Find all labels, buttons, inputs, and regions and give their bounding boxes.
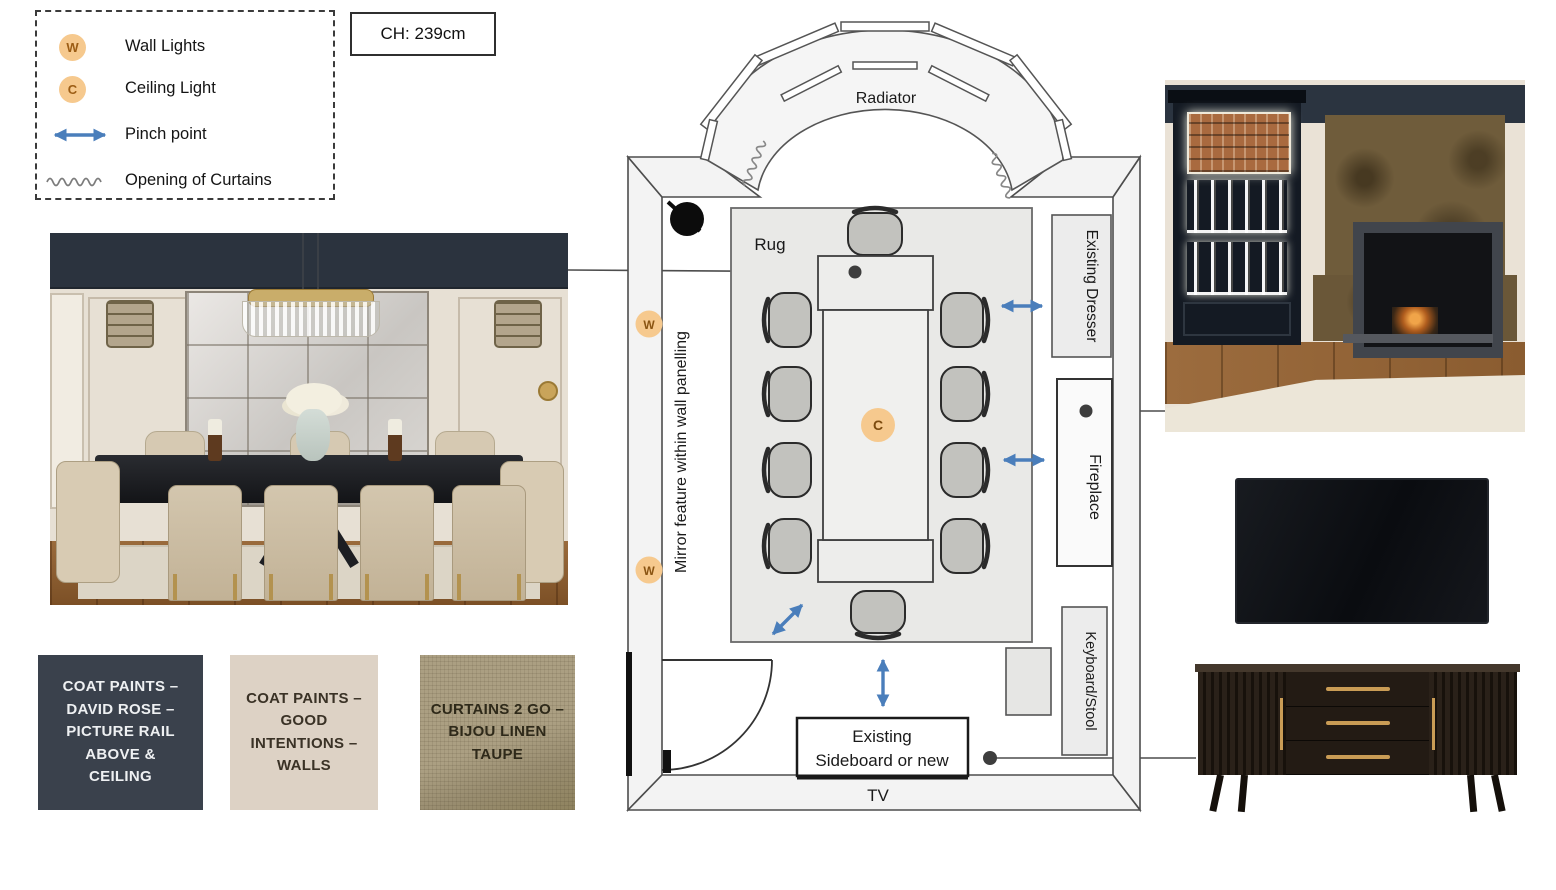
- window-frame: [841, 22, 929, 31]
- sideboard-label-line2: Sideboard or new: [815, 751, 949, 770]
- wall-top-left: [628, 157, 760, 197]
- dresser-fireplace-render: [1165, 80, 1525, 432]
- ceiling-height-box: CH: 239cm: [350, 12, 496, 56]
- legend-label: Ceiling Light: [125, 79, 216, 98]
- tv-render: [1235, 478, 1489, 624]
- legend-label: Pinch point: [125, 125, 207, 144]
- ceiling-light-icon: [861, 408, 895, 442]
- wall-top-right: [1011, 157, 1140, 197]
- window-frame: [853, 62, 917, 69]
- window-frame: [754, 23, 839, 66]
- connector-dining-to-table: [568, 270, 855, 272]
- pinch-point-arrow: [773, 605, 802, 634]
- ceiling-light-icon: C: [59, 76, 86, 103]
- dresser-cornice: [1168, 90, 1306, 103]
- fluted-door: [1429, 672, 1517, 775]
- fireplace-connector-dot: [1080, 405, 1093, 418]
- drawer-handle: [1326, 755, 1390, 759]
- legend-label: Wall Lights: [125, 37, 205, 56]
- door-pull: [1432, 698, 1435, 750]
- wall-light-symbol: W: [643, 318, 655, 332]
- chair-legs: [365, 574, 429, 600]
- wall-bottom: [628, 775, 1140, 810]
- window-frame: [781, 66, 841, 101]
- door-swing: [662, 660, 772, 770]
- bay-window: [707, 30, 1063, 190]
- table-foot: [818, 540, 933, 582]
- chair-legs: [173, 574, 237, 600]
- ceiling-light-symbol: C: [873, 417, 883, 433]
- chair-legs: [269, 574, 333, 600]
- paint-swatch-david-rose: COAT PAINTS – DAVID ROSE – PICTURE RAIL …: [38, 655, 203, 810]
- door-pull: [1280, 698, 1283, 750]
- chandelier-cord: [302, 233, 304, 293]
- paint-swatch-good-intentions: COAT PAINTS – GOOD INTENTIONS – WALLS: [230, 655, 378, 810]
- chandelier-crystals: [242, 301, 380, 337]
- door-frame-shadow: [626, 652, 632, 776]
- drawer: [1286, 672, 1429, 707]
- sideboard-body: [1198, 672, 1517, 775]
- sideboard-leg: [1467, 775, 1477, 812]
- chair: [764, 293, 811, 347]
- legend-row-pinch-point: Pinch point: [37, 122, 333, 156]
- chair: [941, 443, 988, 497]
- vase: [296, 409, 330, 461]
- radiator-label: Radiator: [856, 90, 917, 107]
- sideboard-label-line1: Existing: [852, 727, 912, 746]
- curtain-wave-icon: [43, 172, 119, 190]
- window-frame: [929, 66, 989, 101]
- design-board: W Wall Lights C Ceiling Light Pinch poin…: [0, 0, 1556, 890]
- keyboard-stool-box: [1062, 607, 1107, 755]
- wall-sconce-icon: [494, 300, 542, 348]
- wall-left: [628, 157, 662, 810]
- chair: [941, 367, 988, 421]
- table-head: [818, 256, 933, 310]
- hearth: [1343, 334, 1493, 343]
- wall-light-symbol: W: [643, 564, 655, 578]
- pinch-point-arrow-icon: [43, 126, 119, 144]
- chair: [764, 443, 811, 497]
- sideboard-leg: [1238, 775, 1248, 812]
- wine-rack: [1187, 112, 1291, 174]
- wall-light-icon: W: [59, 34, 86, 61]
- window-frame: [701, 120, 718, 161]
- rug-label: Rug: [754, 235, 785, 254]
- sideboard-connector-dot: [983, 751, 997, 765]
- dining-room-render: [50, 233, 568, 605]
- sideboard-leg: [1491, 774, 1506, 812]
- window-frame: [1010, 55, 1071, 130]
- sideboard-box: [797, 718, 968, 776]
- bay-window-frames: [701, 22, 1072, 160]
- dining-chair: [168, 485, 242, 601]
- drawer-handle: [1326, 687, 1390, 691]
- legend-row-wall-lights: W Wall Lights: [37, 34, 333, 68]
- table-body: [823, 310, 928, 540]
- door-stop: [663, 750, 671, 773]
- wall-light-icon: [636, 311, 663, 338]
- wall-lamp-icon: [538, 381, 558, 401]
- glassware-shelf: [1187, 242, 1287, 295]
- curtain-opening-icon: [989, 152, 1013, 199]
- fireplace-label: Fireplace: [1086, 454, 1103, 520]
- chair: [941, 519, 988, 573]
- dining-chair: [360, 485, 434, 601]
- dining-chair: [264, 485, 338, 601]
- sideboard-top: [1195, 664, 1520, 672]
- legend-row-curtain-opening: Opening of Curtains: [37, 168, 333, 202]
- legend-box: W Wall Lights C Ceiling Light Pinch poin…: [35, 10, 335, 200]
- wall-light-icon: [636, 557, 663, 584]
- dresser-label: Existing Dresser: [1083, 230, 1100, 343]
- drawer: [1286, 740, 1429, 775]
- legend-label: Opening of Curtains: [125, 171, 272, 190]
- chair: [764, 367, 811, 421]
- glassware-shelf: [1187, 180, 1287, 233]
- chair: [764, 519, 811, 573]
- drawer-handle: [1326, 721, 1390, 725]
- dining-chair: [452, 485, 526, 601]
- fireplace-box: [1057, 379, 1112, 566]
- rug: [731, 208, 1032, 642]
- fabric-swatch-bijou-linen: CURTAINS 2 GO – BIJOU LINEN TAUPE: [420, 655, 575, 810]
- dresser-cabinet: [1183, 302, 1291, 336]
- mirror-note: Mirror feature within wall panelling: [673, 331, 690, 573]
- wall-right: [1113, 157, 1140, 810]
- legend-row-ceiling-light: C Ceiling Light: [37, 76, 333, 110]
- window-frame: [932, 23, 1017, 66]
- fluted-door: [1198, 672, 1286, 775]
- ceiling-band: [50, 233, 568, 289]
- chair-legs: [457, 574, 521, 600]
- sideboard-render: [1195, 650, 1520, 815]
- tv-label: TV: [867, 786, 889, 805]
- corner-lamp-arm: [668, 202, 700, 231]
- window-frame: [1055, 120, 1072, 161]
- curtain-opening-icon: [742, 140, 766, 187]
- candle-holder: [388, 419, 402, 461]
- chair: [848, 208, 902, 255]
- corner-lamp-icon: [670, 202, 704, 236]
- table-connector-dot: [849, 266, 862, 279]
- candle-holder: [208, 419, 222, 461]
- end-chair: [56, 461, 120, 583]
- chair: [941, 293, 988, 347]
- sideboard-leg: [1209, 774, 1224, 812]
- stool: [1006, 648, 1051, 715]
- chandelier-cord: [317, 233, 319, 293]
- keyboard-stool-label: Keyboard/Stool: [1082, 631, 1098, 730]
- wall-sconce-icon: [106, 300, 154, 348]
- ceiling-height-label: CH: 239cm: [380, 24, 465, 44]
- dresser-box: [1052, 215, 1111, 357]
- drawer: [1286, 706, 1429, 741]
- window-frame: [701, 55, 762, 130]
- chair: [851, 591, 905, 638]
- drinks-dresser: [1173, 90, 1301, 345]
